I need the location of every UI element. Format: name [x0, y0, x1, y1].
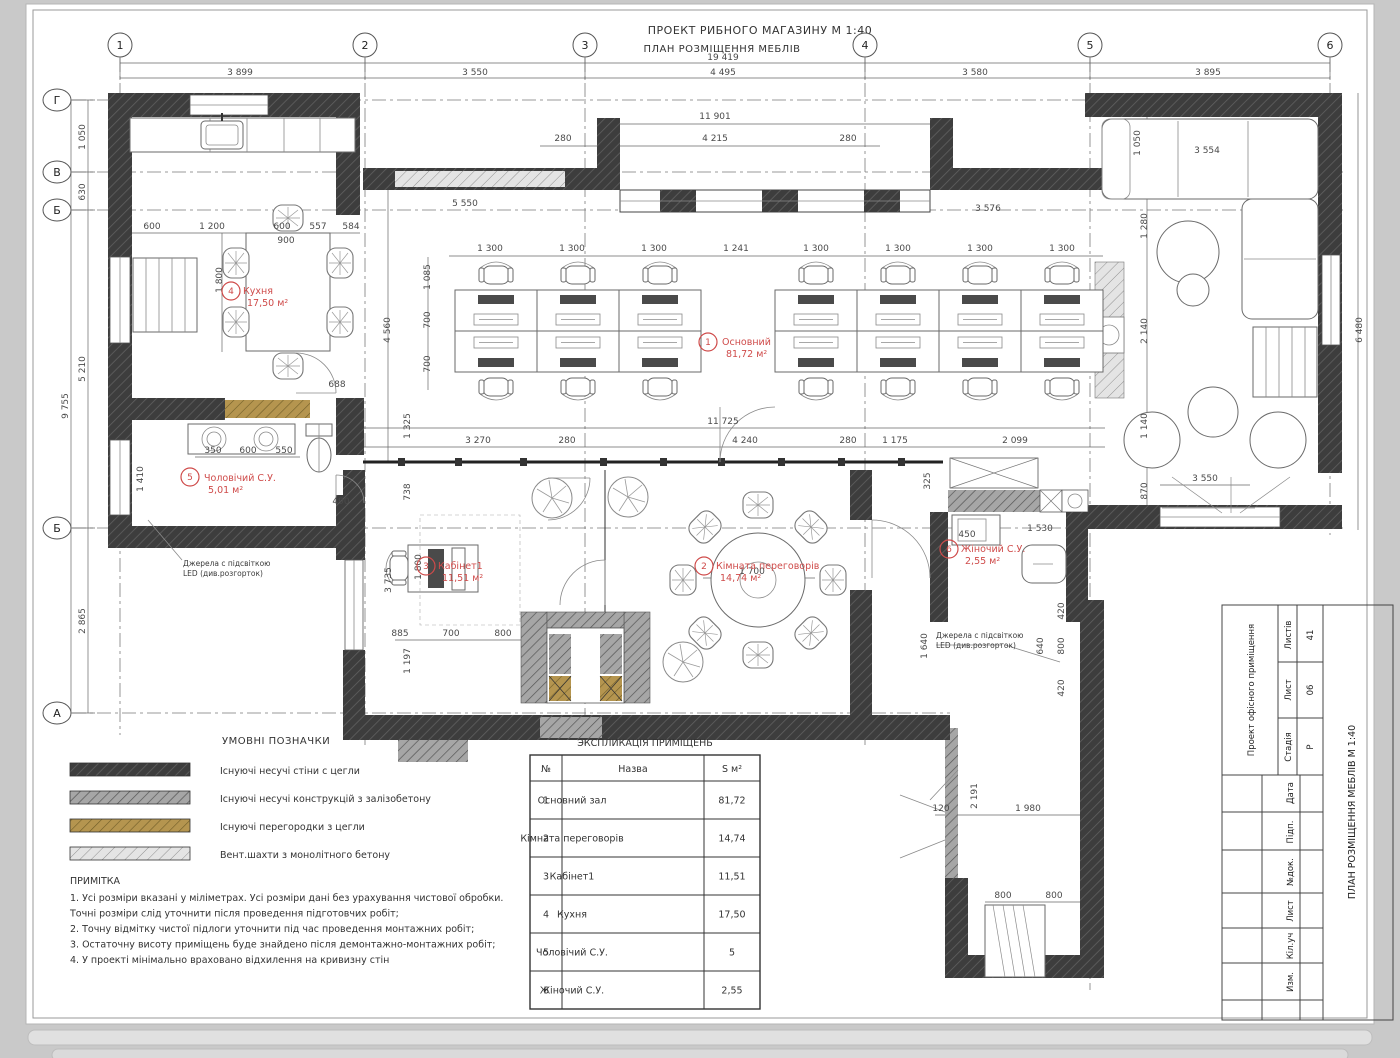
legend-label: Існуючі несучі конструкцій з залізобетон… — [220, 794, 431, 805]
legend-swatch-concrete — [70, 791, 190, 804]
dimension-label: 1 980 — [1015, 804, 1041, 814]
legend-swatch-dark — [70, 763, 190, 776]
table-cell: Чоловічий С.У. — [536, 948, 608, 959]
room-name-label: Чоловічий С.У. — [204, 473, 276, 484]
svg-text:В: В — [53, 166, 61, 179]
legend-title: УМОВНІ ПОЗНАЧКИ — [222, 736, 330, 747]
dimension-label: 350 — [204, 446, 221, 456]
table-cell: 4 — [543, 910, 549, 921]
dimension-label: 120 — [932, 804, 949, 814]
svg-text:Б: Б — [53, 522, 61, 535]
dimension-label: 600 — [143, 222, 160, 232]
dimension-label: 3 899 — [227, 68, 253, 78]
dimension-label: 1 050 — [1133, 130, 1143, 156]
svg-text:1: 1 — [705, 338, 711, 348]
title-block-label: ПЛАН РОЗМІЩЕННЯ МЕБЛІВ М 1:40 — [1347, 725, 1358, 899]
table-cell: Основний зал — [538, 796, 607, 807]
legend-swatch-vent — [70, 847, 190, 860]
led-annotation: Джерела с підсвіткою — [936, 631, 1024, 640]
sheet-title-line1: ПРОЕКТ РИБНОГО МАГАЗИНУ М 1:40 — [648, 24, 872, 37]
dimension-label: 2 099 — [1002, 436, 1028, 446]
dimension-label: 3 895 — [1195, 68, 1221, 78]
title-block-label: №док. — [1286, 858, 1296, 886]
dimension-label: 800 — [994, 891, 1011, 901]
dimension-label: 1 410 — [136, 466, 146, 492]
dimension-label: 3 735 — [384, 567, 394, 593]
dimension-label: 5 210 — [78, 356, 88, 382]
title-block-label: 41 — [1306, 630, 1316, 641]
dimension-label: 11 725 — [707, 417, 739, 427]
note-line: 2. Точну відмітку чистої підлоги уточнит… — [70, 924, 474, 935]
legend-label: Існуючі перегородки з цегли — [220, 822, 365, 833]
title-block-label: Лист — [1284, 679, 1294, 701]
table-cell: Кімната переговорів — [520, 834, 624, 845]
table-header: Назва — [618, 764, 647, 775]
svg-text:3: 3 — [582, 39, 589, 52]
room-area-label: 17,50 м² — [247, 298, 288, 309]
dimension-label: 4 215 — [702, 134, 728, 144]
dimension-label: 280 — [554, 134, 571, 144]
title-block-label: Підп. — [1286, 821, 1296, 844]
svg-text:4: 4 — [228, 287, 234, 297]
svg-text:2: 2 — [701, 562, 707, 572]
led-annotation: LED (див.розгорток) — [936, 641, 1016, 650]
dimension-label: 800 — [494, 629, 511, 639]
dimension-label: 688 — [328, 380, 345, 390]
dimension-label: 1 300 — [1049, 244, 1075, 254]
pouf — [1124, 412, 1180, 468]
room-area-label: 11,51 м² — [442, 573, 483, 584]
title-block-label: Дата — [1286, 782, 1296, 804]
room-area-label: 14,74 м² — [720, 573, 761, 584]
table-cell: Жіночий С.У. — [540, 986, 604, 997]
toilet — [306, 424, 332, 472]
svg-text:5: 5 — [1087, 39, 1094, 52]
room-area-label: 81,72 м² — [726, 349, 767, 360]
dimension-label: 885 — [391, 629, 408, 639]
dimension-label: 700 — [442, 629, 459, 639]
dimension-label: 420 — [1057, 679, 1067, 696]
note-line: 4. У проекті мінімально враховано відхил… — [70, 955, 389, 966]
dimension-label: 1 241 — [723, 244, 749, 254]
table-cell: 14,74 — [718, 834, 745, 845]
dimension-label: 450 — [958, 530, 975, 540]
dimension-label: 3 270 — [465, 436, 491, 446]
table-cell: 5 — [729, 948, 735, 959]
dimension-label: 1 200 — [199, 222, 225, 232]
table-cell: 11,51 — [718, 872, 745, 883]
dimension-label: 3 576 — [975, 204, 1001, 214]
dimension-label: 550 — [275, 446, 292, 456]
svg-text:А: А — [53, 707, 61, 720]
notes-title: ПРИМІТКА — [70, 876, 121, 887]
dimension-label: 1 300 — [885, 244, 911, 254]
legend-swatch-brick-partition — [70, 819, 190, 832]
dimension-label: 640 — [1036, 637, 1046, 654]
dimension-label: 6 480 — [1355, 317, 1365, 343]
room-name-label: Жіночий С.У. — [961, 544, 1025, 555]
svg-text:Г: Г — [54, 94, 61, 107]
room-name-label: Основний — [722, 337, 771, 348]
svg-text:2: 2 — [362, 39, 369, 52]
room-name-label: Кабінет1 — [438, 561, 483, 572]
dimension-label: 280 — [839, 436, 856, 446]
dimension-label: 1 530 — [1027, 524, 1053, 534]
title-block-label: Стадія — [1284, 732, 1294, 761]
dimension-label: 4 240 — [732, 436, 758, 446]
title-block-label: Р — [1306, 744, 1316, 749]
dimension-label: 1 175 — [882, 436, 908, 446]
room-name-label: Кухня — [243, 286, 273, 297]
dimension-label: 325 — [923, 472, 933, 489]
dimension-label: 1 300 — [641, 244, 667, 254]
dimension-label: 11 901 — [699, 112, 731, 122]
dimension-label: 630 — [78, 183, 88, 200]
dimension-label: 1 300 — [559, 244, 585, 254]
dimension-label: 3 550 — [1192, 474, 1218, 484]
pouf — [1188, 387, 1238, 437]
svg-text:3: 3 — [423, 562, 429, 572]
dimension-label: 870 — [1140, 482, 1150, 499]
pouf — [1250, 412, 1306, 468]
legend-label: Існуючі несучі стіни с цегли — [220, 766, 360, 777]
dimension-label: 1 085 — [423, 264, 433, 290]
floor-plan-canvas: ПРОЕКТ РИБНОГО МАГАЗИНУ М 1:40ПЛАН РОЗМІ… — [0, 0, 1400, 1058]
dimension-label: 700 — [423, 355, 433, 372]
dimension-label: 800 — [1057, 637, 1067, 654]
dimension-label: 4 560 — [383, 317, 393, 343]
led-annotation: Джерела с підсвіткою — [183, 559, 271, 568]
dimension-label: 738 — [403, 483, 413, 500]
svg-text:4: 4 — [862, 39, 869, 52]
legend-label: Вент.шахти з монолітного бетону — [220, 850, 390, 861]
table-cell: 17,50 — [718, 910, 745, 921]
table-cell: Кабінет1 — [550, 872, 595, 883]
dimension-label: 2 865 — [78, 608, 88, 634]
room-area-label: 2,55 м² — [965, 556, 1000, 567]
room-name-label: Кімната переговорів — [716, 561, 820, 572]
table-cell: 81,72 — [718, 796, 745, 807]
dimension-label: 1 050 — [78, 124, 88, 150]
drawing-viewer: { "header": { "line1": "ПРОЕКТ РИБНОГО М… — [0, 0, 1400, 1058]
side-table — [1253, 327, 1317, 397]
table-header: S м² — [722, 764, 742, 775]
table-cell: 2,55 — [721, 986, 742, 997]
dimension-label: 584 — [342, 222, 359, 232]
dimension-label: 420 — [1057, 602, 1067, 619]
dimension-label: 600 — [273, 222, 290, 232]
note-line: Точні розміри слід уточнити після провед… — [69, 909, 399, 920]
dimension-label: 1 197 — [403, 648, 413, 674]
dimension-label: 1 140 — [1140, 413, 1150, 439]
led-annotation: LED (див.розгорток) — [183, 569, 263, 578]
dimension-label: 1 325 — [403, 413, 413, 439]
dimension-label: 700 — [423, 311, 433, 328]
dimension-label: 1 280 — [1140, 213, 1150, 239]
dimension-label: 600 — [239, 446, 256, 456]
dimension-label: 3 550 — [462, 68, 488, 78]
dimension-label: 1 300 — [803, 244, 829, 254]
svg-text:6: 6 — [946, 545, 952, 555]
room-area-label: 5,01 м² — [208, 485, 243, 496]
table-header: № — [541, 764, 551, 775]
note-line: 1. Усі розміри вказані у міліметрах. Усі… — [70, 893, 503, 904]
dimension-label: 4 495 — [710, 68, 736, 78]
dimension-label: 900 — [277, 236, 294, 246]
dimension-label: 2 191 — [970, 783, 980, 809]
svg-text:1: 1 — [117, 39, 124, 52]
dimension-label: 490 — [332, 497, 349, 507]
dimension-label: 1 800 — [215, 267, 225, 293]
dimension-label: 1 300 — [477, 244, 503, 254]
dimension-label: 5 550 — [452, 199, 478, 209]
dimension-label: 9 755 — [61, 393, 71, 419]
table-title: ЭКСПЛИКАЦІЯ ПРИМІЩЕНЬ — [577, 738, 712, 749]
title-block-label: Кіл.уч — [1286, 933, 1296, 960]
title-block-label: Лист — [1286, 900, 1296, 922]
svg-text:5: 5 — [187, 473, 193, 483]
dimension-label: 280 — [558, 436, 575, 446]
dimension-label: 557 — [309, 222, 326, 232]
title-block-label: Проект офісного приміщення — [1247, 624, 1257, 756]
dimension-label: 2 140 — [1140, 318, 1150, 344]
next-page-strips[interactable] — [28, 1030, 1372, 1058]
table-cell: 3 — [543, 872, 549, 883]
svg-text:Б: Б — [53, 204, 61, 217]
dimension-label: 3 580 — [962, 68, 988, 78]
title-block-label: Листів — [1284, 621, 1294, 650]
dimension-label: 1 300 — [967, 244, 993, 254]
toilet — [1022, 545, 1066, 583]
dimension-label: 800 — [1045, 891, 1062, 901]
title-block-label: Изм. — [1286, 972, 1296, 992]
dimension-label: 1 640 — [920, 633, 930, 659]
dimension-label: 19 419 — [707, 53, 739, 63]
dimension-label: 280 — [839, 134, 856, 144]
note-line: 3. Остаточну висоту приміщень буде знайд… — [70, 940, 495, 951]
title-block-label: 06 — [1306, 685, 1316, 696]
svg-text:6: 6 — [1327, 39, 1334, 52]
dimension-label: 3 554 — [1194, 146, 1220, 156]
table-cell: Кухня — [557, 910, 587, 921]
